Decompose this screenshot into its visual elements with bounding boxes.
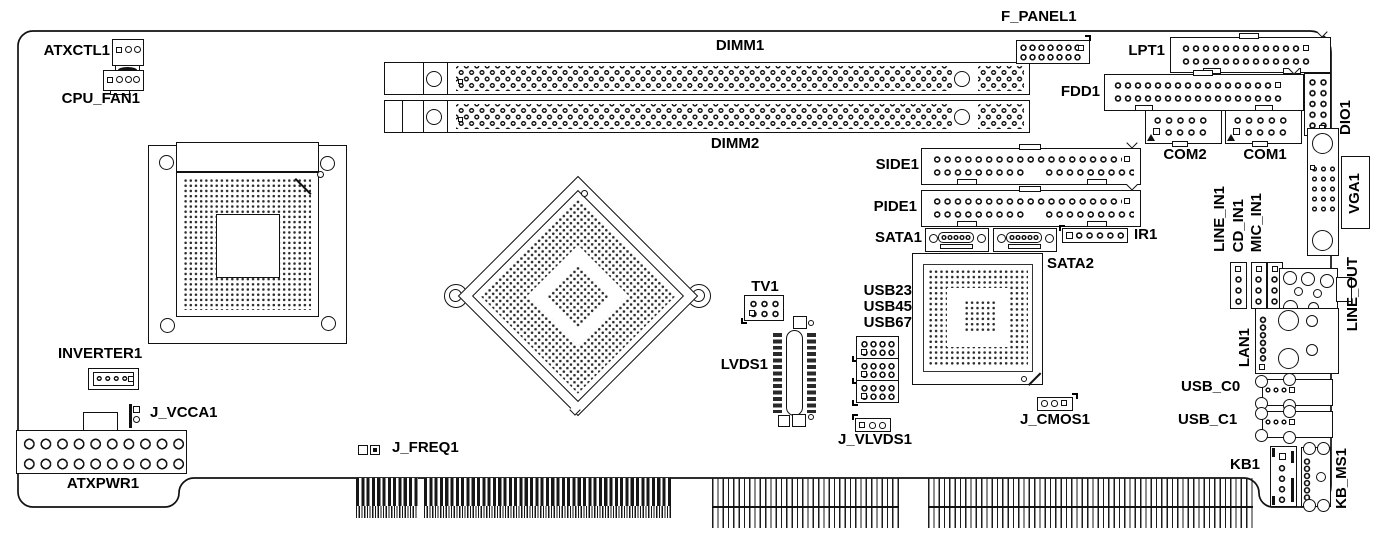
lan1-hole bbox=[1306, 315, 1318, 327]
line-in1-pin1 bbox=[1235, 266, 1241, 272]
edge-seating-line bbox=[712, 506, 899, 508]
cpu-socket-hole bbox=[320, 156, 335, 171]
kb-ms1-pins bbox=[1302, 458, 1312, 501]
kb-ms1-hole bbox=[1317, 499, 1330, 512]
vga1-screw-hole bbox=[1312, 230, 1333, 251]
inverter1-pin1 bbox=[128, 376, 134, 382]
cpu-socket-hole bbox=[159, 155, 174, 170]
label-atxpwr1: ATXPWR1 bbox=[53, 476, 153, 493]
tv1-pin1 bbox=[749, 310, 755, 316]
dimm1-latch-hole bbox=[954, 71, 970, 87]
j-freq1-pin2-dot bbox=[373, 448, 377, 452]
southbridge-pin1-hole bbox=[1021, 376, 1027, 382]
j-cmos1-pin1-marker bbox=[1072, 393, 1078, 399]
cpu-socket-cam-hole bbox=[317, 171, 324, 178]
label-com2: COM2 bbox=[1150, 147, 1220, 164]
kb1-bracket bbox=[1291, 478, 1294, 502]
label-lpt1: LPT1 bbox=[1113, 43, 1165, 60]
ir1-pins bbox=[1074, 230, 1126, 241]
motherboard-layout-diagram: ATXCTL1 CPU_FAN1 INVERTER1 J_VCCA1 ATXPW… bbox=[0, 0, 1382, 536]
vga1-pin-field bbox=[1310, 164, 1337, 214]
label-usb67: USB67 bbox=[846, 315, 912, 332]
side1-pins-bottom-right bbox=[1044, 167, 1134, 178]
j-cmos1-pin bbox=[1051, 400, 1058, 407]
label-ir1: IR1 bbox=[1134, 227, 1157, 244]
lan1-pins bbox=[1258, 316, 1268, 362]
side1-notch bbox=[1087, 179, 1107, 185]
dimm1-contact-field bbox=[456, 66, 952, 91]
dimm2-latch-hole bbox=[426, 109, 442, 125]
label-dimm2: DIMM2 bbox=[697, 136, 773, 153]
line-out-hole bbox=[1301, 272, 1315, 286]
lan1-hole bbox=[1278, 348, 1299, 369]
kb-ms1-hole bbox=[1317, 442, 1330, 455]
usb-c0-pin1 bbox=[1289, 387, 1295, 393]
lvds1-hole bbox=[808, 414, 814, 420]
ir1-pin1-marker bbox=[1059, 225, 1065, 231]
cd-in1-pins bbox=[1253, 274, 1264, 307]
dimm2-latch-hole bbox=[954, 109, 970, 125]
com2-pins-top bbox=[1152, 115, 1209, 126]
sata1-hole bbox=[977, 234, 986, 243]
pide1-pins-bottom-left bbox=[932, 209, 1027, 220]
sata1-key-bar bbox=[940, 244, 973, 249]
line-out-hole bbox=[1294, 287, 1303, 296]
lan1-hole bbox=[1278, 310, 1299, 331]
label-usb-c1: USB_C1 bbox=[1178, 412, 1237, 429]
label-lan1: LAN1 bbox=[1237, 328, 1252, 367]
side1-pin1 bbox=[1124, 156, 1130, 162]
label-line-out: LINE_OUT bbox=[1345, 257, 1360, 331]
j-vcca1-bracket bbox=[129, 404, 132, 428]
usb-c1-hole bbox=[1283, 431, 1296, 444]
com1-pin1-arrow bbox=[1227, 134, 1235, 141]
edge-fingers-group1 bbox=[356, 478, 418, 506]
dimm2-divider bbox=[447, 100, 448, 133]
line-in1-pins bbox=[1233, 274, 1244, 307]
dimm2-contact-field bbox=[456, 104, 952, 129]
sata2-blade-pins bbox=[1009, 234, 1039, 241]
label-mic-in1: MIC_IN1 bbox=[1249, 193, 1264, 252]
label-inverter1: INVERTER1 bbox=[58, 346, 170, 363]
lan1-hole bbox=[1306, 344, 1318, 356]
side1-notch bbox=[957, 179, 977, 185]
ir1-pin1 bbox=[1066, 232, 1073, 239]
dimm2-divider bbox=[423, 100, 424, 133]
cpu-socket-hole bbox=[321, 316, 336, 331]
lvds1-hole bbox=[808, 320, 814, 326]
lvds1-contacts-right bbox=[807, 333, 816, 413]
sata1-blade-pins bbox=[941, 234, 971, 241]
label-sata1: SATA1 bbox=[856, 230, 922, 247]
usb23-pin1 bbox=[861, 349, 867, 355]
cpu-fan1-pin bbox=[125, 76, 132, 83]
dimm2-divider bbox=[402, 100, 403, 133]
dimm2-key-pin bbox=[458, 117, 463, 122]
edge-fingers-group4 bbox=[928, 478, 1253, 528]
label-line-in1: LINE_IN1 bbox=[1212, 186, 1227, 252]
line-out-hole bbox=[1313, 289, 1322, 298]
tv1-pins bbox=[748, 299, 781, 319]
label-lvds1: LVDS1 bbox=[708, 357, 768, 374]
kb-ms1-hole bbox=[1303, 499, 1316, 512]
label-tv1: TV1 bbox=[744, 279, 786, 296]
f-panel1-pin1 bbox=[1078, 45, 1084, 51]
dimm2-contact-field-right bbox=[978, 104, 1024, 129]
kb-ms1-hole bbox=[1316, 472, 1326, 482]
label-side1: SIDE1 bbox=[855, 157, 919, 174]
lan1-pin1 bbox=[1259, 364, 1265, 370]
sata2-key-bar bbox=[1008, 244, 1041, 249]
fdd1-notch bbox=[1193, 70, 1213, 76]
side1-pins-top bbox=[932, 154, 1122, 165]
mic-in1-pin1 bbox=[1272, 266, 1278, 272]
kb1-bracket bbox=[1272, 448, 1275, 457]
pide1-pins-top bbox=[932, 196, 1122, 207]
cpu-socket-cam-line bbox=[176, 171, 319, 173]
atxctl1-pin bbox=[125, 46, 132, 53]
usb-c1-hole bbox=[1283, 405, 1296, 418]
dimm1-divider bbox=[423, 62, 424, 95]
pide1-notch bbox=[1087, 221, 1107, 227]
pide1-pin1 bbox=[1124, 198, 1130, 204]
southbridge-core-balls bbox=[964, 300, 996, 332]
label-com1: COM1 bbox=[1230, 147, 1300, 164]
atxpwr1-pins bbox=[21, 434, 187, 474]
inverter1-pins bbox=[95, 374, 129, 383]
edge-fingers-group3 bbox=[712, 478, 899, 528]
com1-pins-bottom bbox=[1243, 127, 1289, 138]
sata2-hole bbox=[1045, 234, 1054, 243]
label-j-freq1: J_FREQ1 bbox=[392, 440, 459, 457]
lvds1-contacts-left bbox=[773, 333, 782, 413]
lvds1-slot bbox=[786, 330, 803, 416]
dimm1-key-pin bbox=[458, 79, 463, 84]
j-vlvds1-pin1 bbox=[859, 422, 865, 428]
pide1-notch bbox=[957, 221, 977, 227]
cpu-fan1-pin1 bbox=[107, 77, 113, 83]
f-panel1-pins bbox=[1019, 43, 1082, 62]
cpu-fan1-pin bbox=[133, 76, 140, 83]
fdd1-pins-bottom bbox=[1113, 93, 1283, 104]
usb-c1-pins bbox=[1264, 418, 1288, 426]
label-dio1: DIO1 bbox=[1338, 100, 1353, 135]
usb-c1-hole bbox=[1255, 429, 1268, 442]
dimm1-contact-field-right bbox=[978, 66, 1024, 91]
vga1-screw-hole bbox=[1312, 133, 1333, 154]
f-panel1-pin1-marker bbox=[1085, 35, 1091, 41]
j-vlvds1-pin bbox=[879, 422, 886, 429]
edge-fingers-group1-feet bbox=[356, 506, 418, 518]
atxctl1-pin1 bbox=[116, 47, 122, 53]
j-vlvds1-pin bbox=[869, 422, 876, 429]
com2-pin1-arrow bbox=[1147, 134, 1155, 141]
northbridge-pin1-hole bbox=[581, 190, 588, 197]
cd-in1-pin1 bbox=[1256, 266, 1262, 272]
label-j-cmos1: J_CMOS1 bbox=[1005, 412, 1105, 429]
atxctl1-pin bbox=[134, 46, 141, 53]
label-cpu-fan1: CPU_FAN1 bbox=[56, 91, 140, 108]
usb-c0-pins bbox=[1264, 386, 1288, 394]
pide1-pins-bottom-right bbox=[1044, 209, 1134, 220]
lpt1-pin1 bbox=[1303, 45, 1309, 51]
usb67-pin1 bbox=[861, 393, 867, 399]
label-j-vlvds1: J_VLVDS1 bbox=[825, 432, 925, 449]
cpu-fan1-pin bbox=[116, 76, 123, 83]
j-cmos1-pin bbox=[1041, 400, 1048, 407]
lvds1-bottom-key bbox=[778, 415, 790, 427]
usb67-pin1-marker bbox=[852, 400, 858, 406]
j-vcca1-pin1 bbox=[133, 406, 140, 413]
label-cd-in1: CD_IN1 bbox=[1231, 199, 1246, 252]
sata2-hole bbox=[997, 234, 1006, 243]
fdd1-pins-top bbox=[1113, 80, 1273, 91]
label-f-panel1: F_PANEL1 bbox=[1001, 9, 1077, 26]
atxpwr1-tab bbox=[83, 412, 118, 432]
j-freq1-pin1 bbox=[358, 445, 368, 455]
kb1-pins bbox=[1276, 463, 1288, 505]
cpu-socket-hole bbox=[160, 318, 175, 333]
side1-notch bbox=[1019, 144, 1041, 150]
kb1-pin1 bbox=[1279, 453, 1286, 460]
label-vga1: VGA1 bbox=[1347, 173, 1362, 214]
lvds1-top-key bbox=[793, 316, 807, 329]
label-kb1: KB1 bbox=[1212, 457, 1260, 474]
side1-pins-bottom-left bbox=[932, 167, 1027, 178]
kb1-bracket bbox=[1291, 451, 1294, 463]
usb-c0-hole bbox=[1283, 373, 1296, 386]
label-j-vcca1: J_VCCA1 bbox=[150, 405, 218, 422]
pide1-notch bbox=[1019, 186, 1041, 192]
dio1-pins bbox=[1307, 77, 1329, 131]
kb1-bracket bbox=[1272, 496, 1275, 505]
kb-ms1-hole bbox=[1303, 442, 1316, 455]
label-usb-c0: USB_C0 bbox=[1181, 379, 1240, 396]
com1-pins-top bbox=[1232, 115, 1289, 126]
com2-pins-bottom bbox=[1163, 127, 1209, 138]
fdd1-pin1 bbox=[1275, 82, 1281, 88]
line-out-hole bbox=[1320, 274, 1334, 288]
j-vcca1-pin2 bbox=[133, 416, 140, 423]
lpt1-notch bbox=[1239, 33, 1259, 39]
cpu-socket-center bbox=[216, 214, 280, 278]
j-cmos1-pin1 bbox=[1061, 400, 1067, 406]
tv1-pin1-marker bbox=[741, 318, 747, 324]
edge-fingers-group2 bbox=[424, 478, 671, 506]
usb45-pin1 bbox=[861, 371, 867, 377]
edge-seating-line bbox=[928, 506, 1253, 508]
usb-c1-pin1 bbox=[1289, 419, 1295, 425]
label-fdd1: FDD1 bbox=[1048, 84, 1100, 101]
line-out-hole bbox=[1283, 271, 1297, 285]
dimm1-latch-hole bbox=[426, 71, 442, 87]
label-kb-ms1: KB_MS1 bbox=[1334, 448, 1349, 509]
label-dimm1: DIMM1 bbox=[702, 38, 778, 55]
label-atxctl1: ATXCTL1 bbox=[20, 43, 110, 60]
dimm1-divider bbox=[447, 62, 448, 95]
j-vlvds1-pin1-marker bbox=[852, 414, 858, 420]
vga1-pin1 bbox=[1310, 165, 1315, 170]
sata1-hole bbox=[929, 234, 938, 243]
label-sata2: SATA2 bbox=[1047, 256, 1094, 273]
label-pide1: PIDE1 bbox=[853, 199, 917, 216]
lpt1-pins-top bbox=[1181, 43, 1301, 54]
edge-fingers-group2-feet bbox=[424, 506, 671, 518]
lvds1-bottom-key bbox=[792, 414, 806, 427]
